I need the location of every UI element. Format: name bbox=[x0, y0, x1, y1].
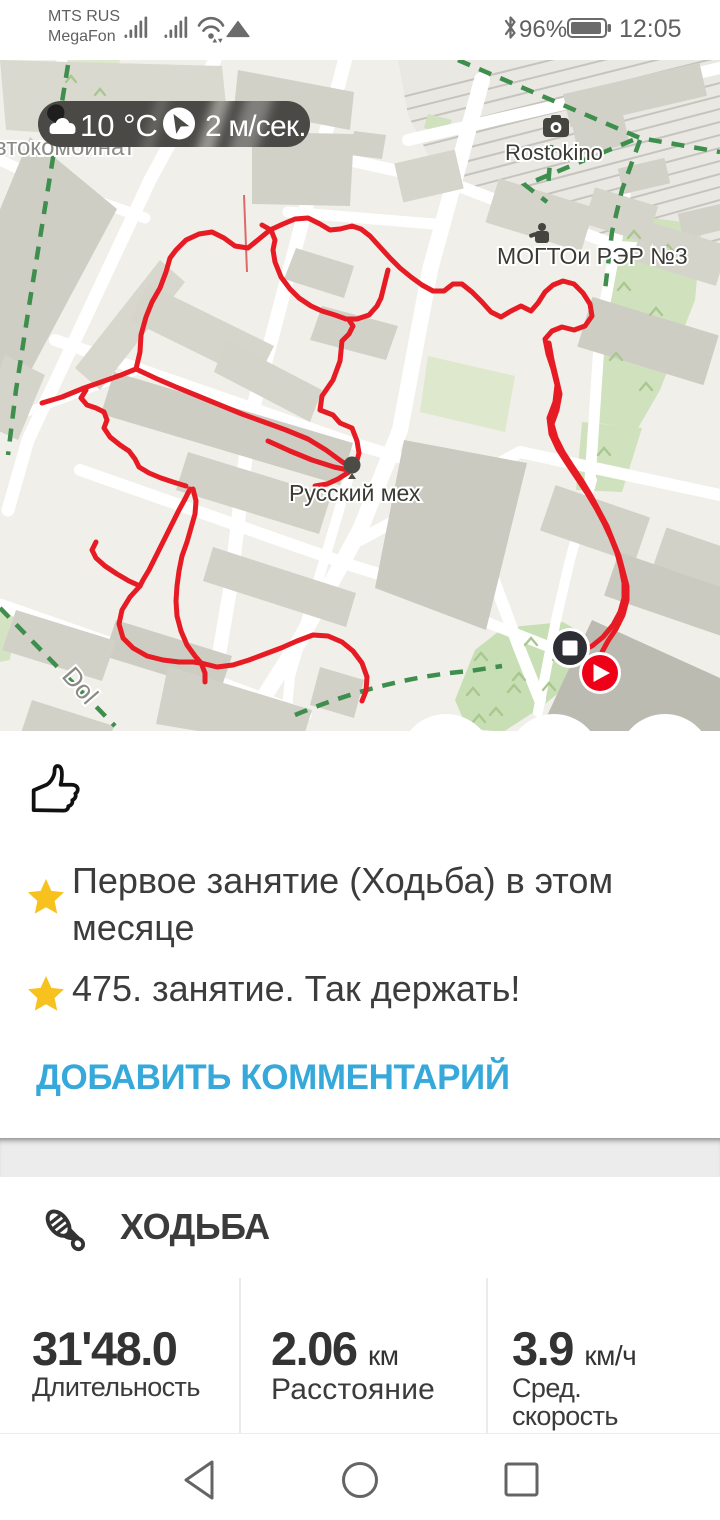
svg-text:Русский мех: Русский мех bbox=[289, 480, 421, 506]
svg-text:Rostokino: Rostokino bbox=[505, 140, 603, 165]
svg-text:2 м/сек.: 2 м/сек. bbox=[205, 110, 306, 143]
svg-text:МОГТОи РЭР №3: МОГТОи РЭР №3 bbox=[497, 243, 688, 269]
svg-text:10 °C: 10 °C bbox=[80, 108, 158, 143]
